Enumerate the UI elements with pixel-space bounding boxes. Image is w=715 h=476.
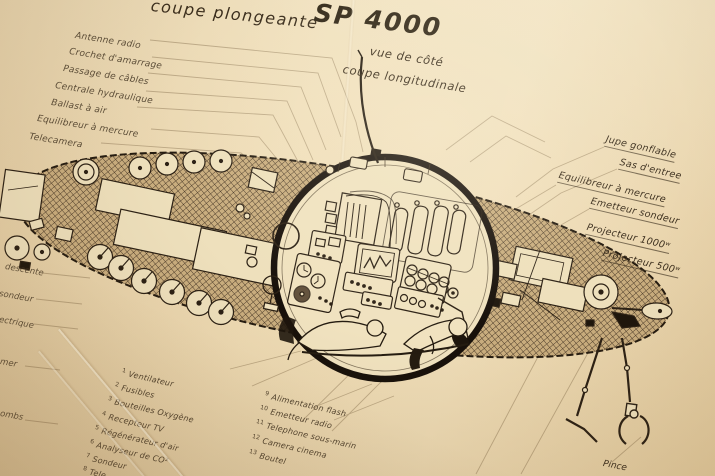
photo-of-technical-drawing: coupe plongeante SP 4000 vue de côté cou… — [0, 0, 715, 476]
projector-disc — [584, 275, 618, 309]
mechanical-arm-claw — [619, 338, 648, 444]
